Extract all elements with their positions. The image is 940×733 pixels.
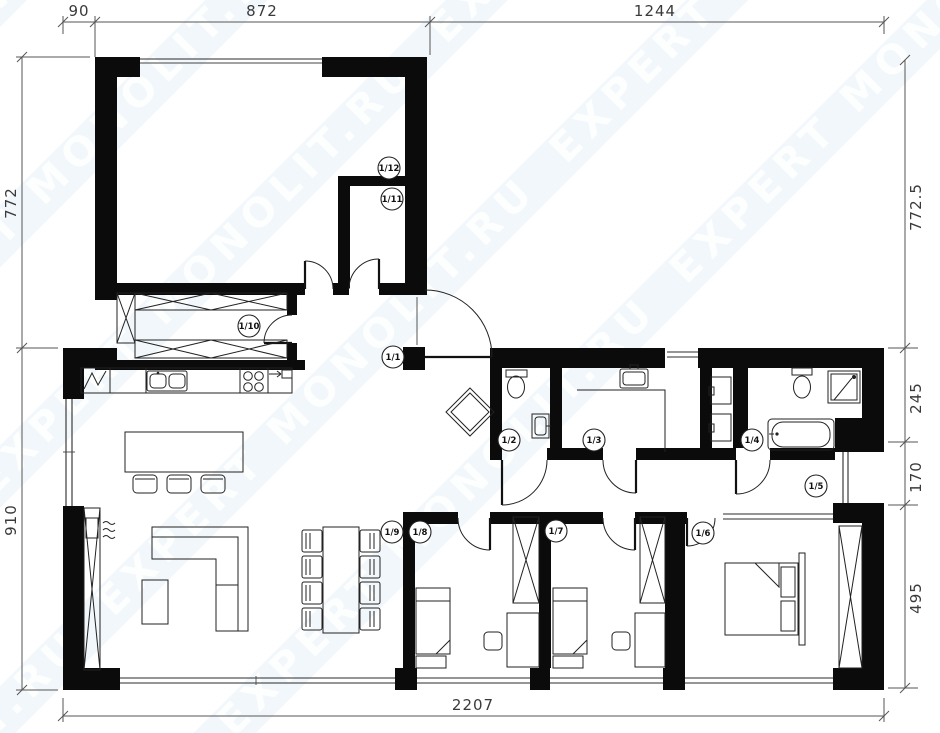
desk <box>507 613 539 667</box>
svg-text:1/6: 1/6 <box>696 529 711 539</box>
utility-sink-icon <box>620 365 648 388</box>
svg-text:1/5: 1/5 <box>809 482 824 492</box>
svg-text:1/12: 1/12 <box>379 164 400 174</box>
dim-top-90: 90 <box>68 2 89 20</box>
dim-right-170: 170 <box>907 461 925 493</box>
room-label-1-6: 1/6 <box>692 522 714 544</box>
wardrobe-icon <box>839 526 862 668</box>
room-label-1-5: 1/5 <box>805 475 827 497</box>
chair <box>302 556 322 578</box>
room-label-1-7: 1/7 <box>545 520 567 542</box>
svg-text:1/8: 1/8 <box>413 528 428 538</box>
bar-stool <box>167 475 191 493</box>
floor-plan-page: EXPERT MONOLIT.RU EXPERT MONOLIT.RU EXPE… <box>0 0 940 733</box>
room-label-1-8: 1/8 <box>409 521 431 543</box>
svg-text:1/9: 1/9 <box>385 528 400 538</box>
wardrobe-icon <box>640 517 665 603</box>
bed-single <box>553 588 587 668</box>
chair <box>302 530 322 552</box>
utility-door <box>603 460 636 493</box>
bar-stool <box>133 475 157 493</box>
floor-plan-drawing: EXPERT MONOLIT.RU EXPERT MONOLIT.RU EXPE… <box>0 0 940 733</box>
bedroom-6 <box>725 526 862 668</box>
dim-top-872: 872 <box>246 2 278 20</box>
wardrobe-icon <box>513 517 539 603</box>
room-label-1-12: 1/12 <box>378 157 400 179</box>
window-bedroom8-south <box>417 678 530 683</box>
walls <box>63 57 884 690</box>
svg-text:1/4: 1/4 <box>745 436 760 446</box>
entry-hall <box>446 388 494 436</box>
chair <box>484 632 502 650</box>
washer-icon <box>709 377 731 404</box>
window-corridor-right <box>843 452 848 503</box>
room-label-1-9: 1/9 <box>381 521 403 543</box>
stove-icon <box>244 372 264 392</box>
toilet-icon <box>792 368 812 398</box>
window-bedroom6-south <box>685 678 833 683</box>
room-label-1-4: 1/4 <box>741 429 763 451</box>
kitchen-sink-icon <box>147 371 187 391</box>
room-label-1-1: 1/1 <box>382 346 404 368</box>
dim-left-910: 910 <box>2 504 20 536</box>
dim-right-772-5: 772.5 <box>907 183 925 231</box>
dim-left-772: 772 <box>2 187 20 219</box>
dim-bottom-2207: 2207 <box>452 696 494 714</box>
room-label-1-2: 1/2 <box>498 429 520 451</box>
laundry-niche <box>709 377 731 441</box>
bathtub-icon <box>768 419 834 450</box>
windows <box>63 59 848 685</box>
svg-text:1/10: 1/10 <box>239 322 260 332</box>
window-bedroom7-south <box>550 678 663 683</box>
garage-double-door-right <box>349 259 379 289</box>
svg-text:1/7: 1/7 <box>549 527 564 537</box>
dim-right-245: 245 <box>907 382 925 414</box>
shower-icon <box>828 371 860 403</box>
dim-top-1244: 1244 <box>634 2 676 20</box>
vent-arrow-icon <box>269 370 292 378</box>
room-label-1-3: 1/3 <box>583 429 605 451</box>
window-utility <box>667 352 698 357</box>
desk <box>635 613 665 667</box>
bed-double <box>725 553 805 645</box>
svg-text:1/2: 1/2 <box>502 436 517 446</box>
garage-double-door-left <box>305 261 333 289</box>
washer-icon <box>709 414 731 441</box>
svg-text:1/3: 1/3 <box>587 436 602 446</box>
room-label-1-11: 1/11 <box>381 188 403 210</box>
storage-door <box>264 315 292 343</box>
room-label-1-10: 1/10 <box>238 315 260 337</box>
bed-single <box>416 588 450 668</box>
bedroom-7 <box>553 517 665 668</box>
watermark-text: EXPERT MONOLIT.RU <box>0 46 426 504</box>
svg-text:1/1: 1/1 <box>386 353 401 363</box>
bedroom7-door <box>603 518 635 550</box>
toilet-icon <box>506 370 527 398</box>
dim-right-495: 495 <box>907 582 925 614</box>
chair <box>612 632 630 650</box>
bathroom-door <box>736 460 770 494</box>
entry-bench <box>446 388 494 436</box>
svg-text:1/11: 1/11 <box>382 195 403 205</box>
